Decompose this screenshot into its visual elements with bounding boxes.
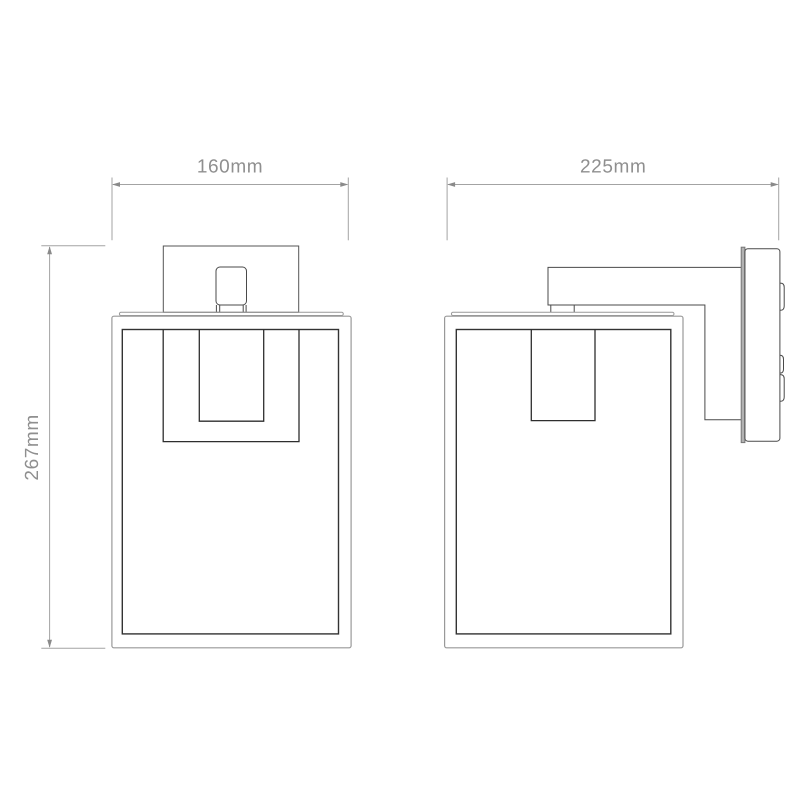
- svg-text:267mm: 267mm: [22, 414, 43, 480]
- svg-text:160mm: 160mm: [197, 156, 263, 177]
- svg-text:225mm: 225mm: [580, 156, 646, 177]
